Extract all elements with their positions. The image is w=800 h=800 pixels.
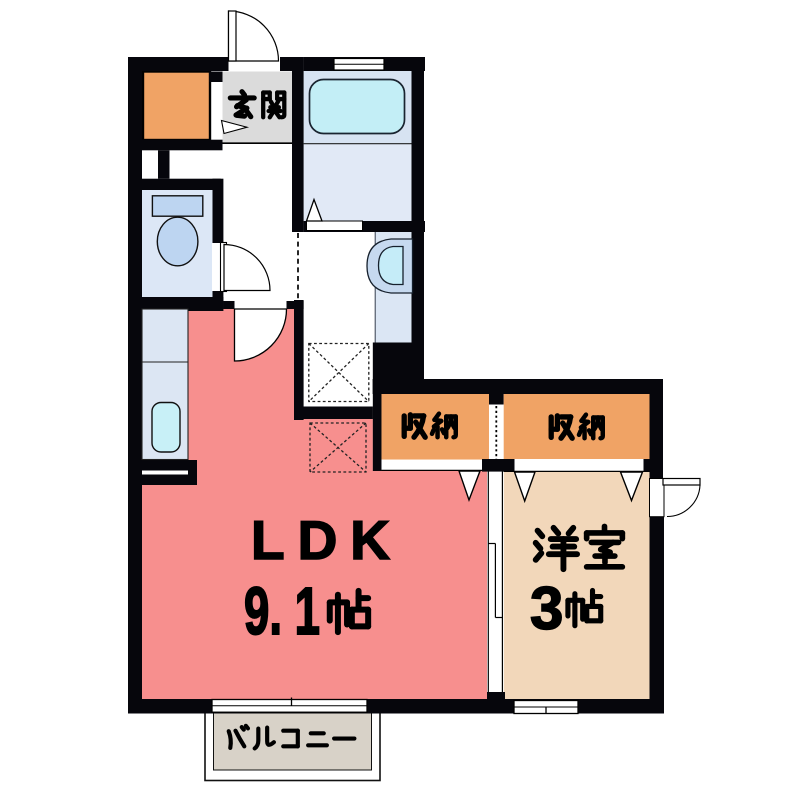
svg-text:3: 3 bbox=[530, 575, 563, 642]
svg-text:9. 1: 9. 1 bbox=[244, 574, 320, 649]
svg-text:LDK: LDK bbox=[251, 509, 403, 571]
